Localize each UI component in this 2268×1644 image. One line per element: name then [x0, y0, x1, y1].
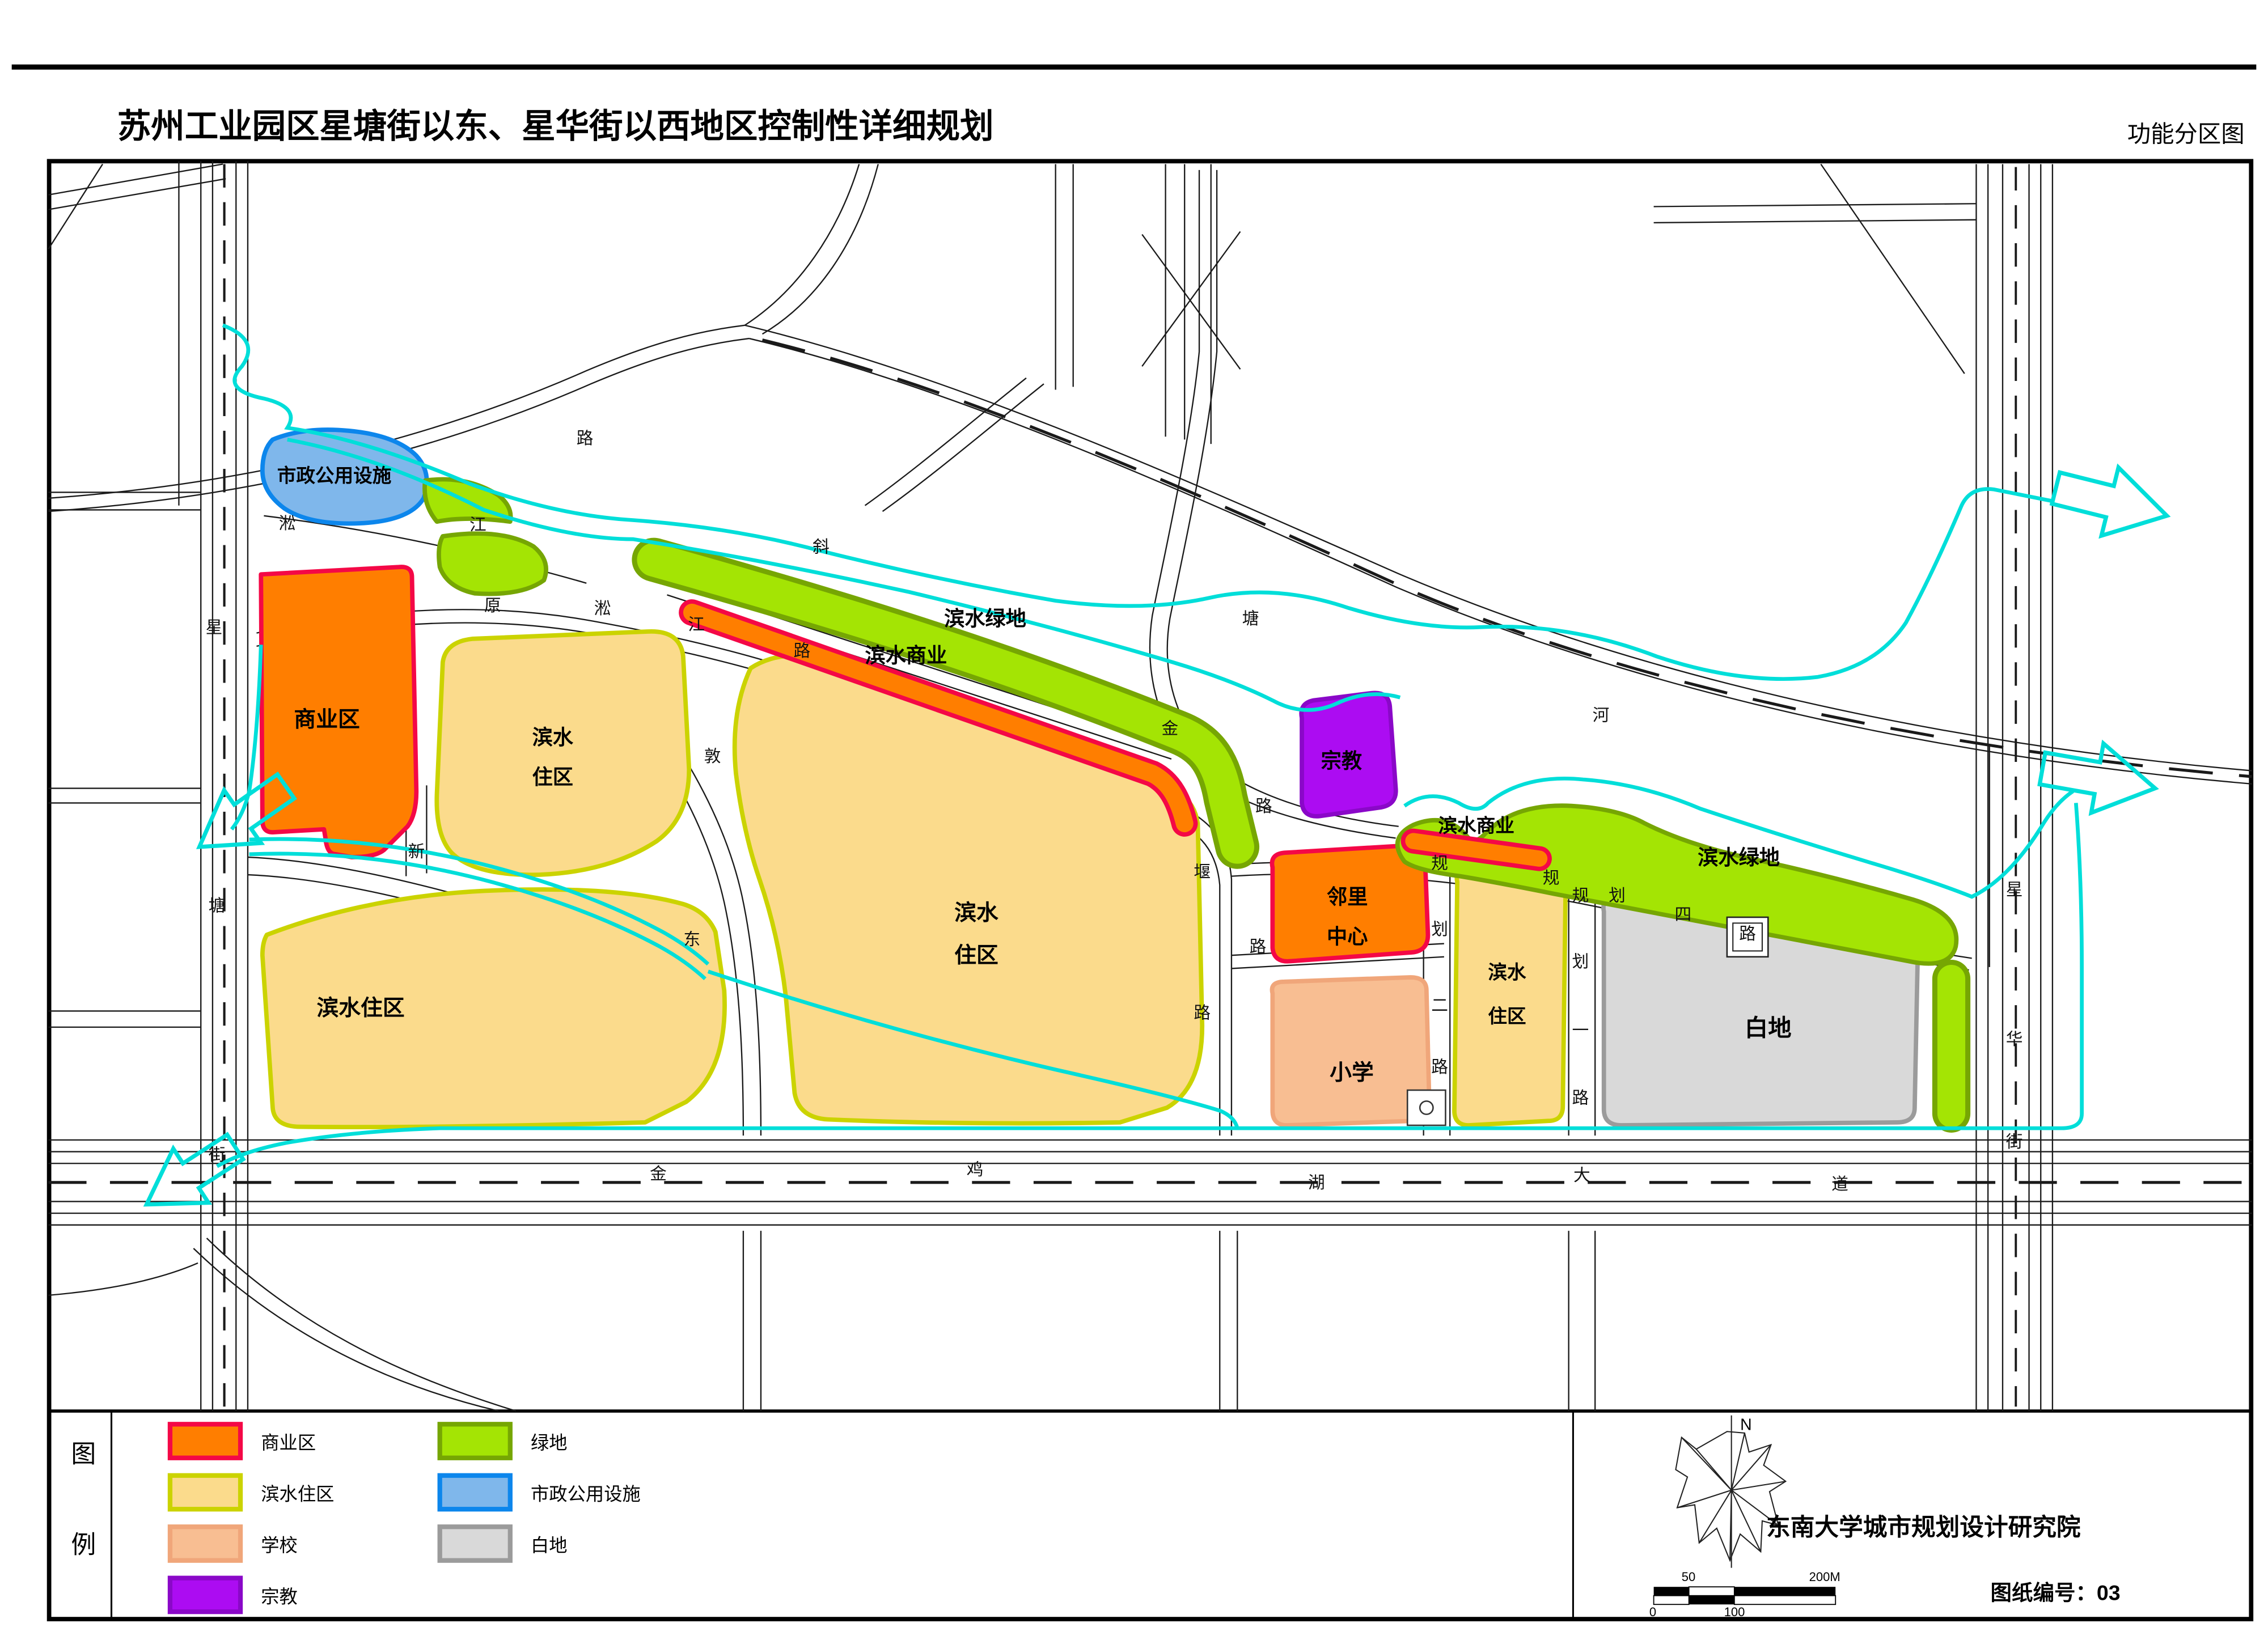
road-label-char: 路: [1572, 1088, 1589, 1107]
road-label-char: 街: [2006, 1133, 2023, 1151]
legend-label-municipal: 市政公用设施: [531, 1484, 641, 1505]
road-label-char: 河: [1593, 706, 1610, 725]
legend-label-residential: 滨水住区: [261, 1484, 334, 1505]
drawing-number: 图纸编号：03: [1991, 1581, 2121, 1604]
legend-header-bottom: 例: [71, 1531, 96, 1559]
zone-label: 滨水商业: [1438, 815, 1514, 837]
legend-swatch-municipal: [440, 1476, 510, 1509]
road-label-char: 淞: [279, 514, 296, 533]
road-label-char: 鸡: [967, 1160, 984, 1179]
legend-label-religion: 宗教: [261, 1587, 298, 1607]
legend-swatch-religion: [170, 1578, 240, 1612]
zone-label: 白地: [1745, 1015, 1792, 1041]
legend-label-commercial: 商业区: [261, 1433, 316, 1453]
road-label-char: 金: [650, 1165, 667, 1184]
zone-label: 商业区: [294, 707, 359, 732]
zone-label: 宗教: [1321, 749, 1363, 772]
road-label-char: 路: [1739, 925, 1756, 943]
road-label-char: 原: [484, 596, 501, 615]
legend-header-top: 图: [71, 1440, 96, 1468]
scale-label-200: 200M: [1809, 1570, 1840, 1584]
road-label-char: 星: [206, 618, 223, 637]
zone-waterfront-residential-east: [1454, 862, 1566, 1125]
road-label-char: 规: [1431, 854, 1448, 873]
road-label-char: 路: [1194, 1003, 1211, 1022]
legend-swatch-school: [170, 1527, 240, 1560]
sheet-title: 苏州工业园区星塘街以东、星华街以西地区控制性详细规划: [117, 107, 994, 145]
road-label-char: 规: [1572, 887, 1589, 905]
road-label-char: 东: [684, 930, 701, 949]
road-label-char: 路: [1255, 797, 1272, 816]
institute-name: 东南大学城市规划设计研究院: [1766, 1514, 2080, 1541]
road-label-char: 路: [577, 429, 594, 448]
road-label-char: 金: [1161, 719, 1178, 738]
road-label-char: 江: [688, 615, 705, 634]
road-label-char: 一: [1572, 1021, 1589, 1040]
legend-swatch-commercial: [170, 1424, 240, 1457]
compass-north-label: N: [1740, 1416, 1752, 1434]
utility-plot: [1407, 1090, 1445, 1125]
planning-map-sheet: 苏州工业园区星塘街以东、星华街以西地区控制性详细规划 功能分区图: [0, 0, 2268, 1644]
legend-label-school: 学校: [261, 1535, 298, 1556]
road-label-char: 淞: [594, 599, 611, 618]
zone-primary-school: [1272, 977, 1429, 1125]
legend-swatch-vacant: [440, 1527, 510, 1560]
road-label-char: 规: [1543, 869, 1560, 888]
header-rule: [12, 65, 2257, 70]
road-label-char: 街: [209, 1146, 226, 1164]
legend-label-green: 绿地: [531, 1433, 568, 1453]
road-label-char: 敦: [704, 747, 721, 766]
road-label-char: 道: [1831, 1175, 1848, 1194]
road-label-char: 星: [2006, 880, 2023, 899]
scale-label-50: 50: [1682, 1570, 1695, 1584]
road-label-char: 江: [469, 516, 486, 535]
zone-label: 滨水商业: [865, 643, 947, 667]
road-label-char: 二: [1431, 996, 1448, 1015]
legend-swatch-green: [440, 1424, 510, 1457]
road-label-char: 斜: [813, 537, 830, 556]
road-label-char: 四: [1674, 905, 1691, 924]
road-label-char: 湖: [1308, 1173, 1325, 1192]
road-label-char: 大: [1573, 1166, 1590, 1185]
zone-label: 市政公用设施: [277, 464, 392, 486]
road-label-char: 划: [1431, 920, 1448, 939]
scale-label-0: 0: [1649, 1605, 1656, 1619]
zone-green-patch: [439, 533, 546, 594]
road-label-char: 划: [1572, 952, 1589, 971]
zone-label: 滨水绿地: [944, 607, 1026, 630]
road-label-char: 塘: [209, 897, 226, 916]
road-label-char: 路: [1250, 938, 1267, 956]
sheet-subtitle: 功能分区图: [2127, 121, 2245, 147]
legend-label-vacant: 白地: [531, 1535, 568, 1556]
legend-swatch-residential: [170, 1476, 240, 1509]
scale-label-100: 100: [1724, 1605, 1745, 1619]
road-label-char: 堰: [1194, 863, 1211, 882]
zone-waterfront-residential-nw: [437, 632, 689, 875]
zone-label: 小学: [1330, 1061, 1374, 1085]
road-label-char: 新: [408, 842, 425, 861]
road-label-char: 划: [1609, 887, 1626, 905]
road-label-char: 路: [1431, 1058, 1448, 1077]
zone-label: 滨水住区: [317, 996, 405, 1020]
road-label-char: 塘: [1242, 609, 1259, 628]
road-label-char: 路: [793, 642, 810, 660]
road-label-char: 华: [2006, 1030, 2023, 1049]
zone-label: 滨水绿地: [1698, 846, 1780, 869]
